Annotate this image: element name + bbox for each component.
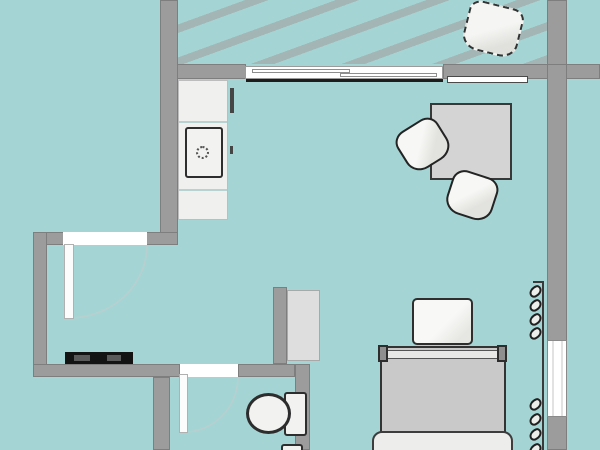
wall-bathroom-left bbox=[153, 377, 170, 450]
bathroom-door-opening[interactable] bbox=[180, 364, 238, 377]
wall-balcony-right bbox=[547, 0, 567, 65]
hook-icon bbox=[527, 326, 543, 341]
counter-divider bbox=[179, 189, 227, 191]
hook-icon bbox=[527, 412, 543, 427]
wall-entry-bottom bbox=[33, 364, 180, 377]
tv-detail bbox=[74, 355, 90, 361]
wall-balcony-top-left bbox=[177, 64, 246, 79]
right-wall-window-icon[interactable] bbox=[547, 340, 567, 417]
counter-edge-mark bbox=[230, 146, 233, 154]
entry-door-arc bbox=[69, 245, 147, 318]
balcony-window-icon[interactable] bbox=[447, 76, 528, 83]
tv-detail bbox=[107, 355, 121, 361]
bed-blanket bbox=[372, 431, 513, 450]
counter-edge-mark bbox=[230, 88, 234, 113]
floor-plan-canvas bbox=[0, 0, 600, 450]
entry-door-opening[interactable] bbox=[63, 232, 147, 245]
wall-wardrobe-stub bbox=[273, 287, 287, 364]
hook-icon bbox=[527, 427, 543, 442]
bathroom-sink[interactable] bbox=[281, 444, 303, 450]
wall-hooks-rail[interactable] bbox=[527, 281, 544, 450]
sliding-door-threshold bbox=[246, 79, 443, 82]
hook-icon bbox=[527, 298, 543, 313]
counter-divider bbox=[179, 121, 227, 123]
sliding-door-panel bbox=[252, 69, 350, 73]
hook-icon bbox=[527, 442, 543, 450]
hook-icon bbox=[527, 284, 543, 299]
bedside-table[interactable] bbox=[412, 298, 473, 345]
wall-entry-top-right bbox=[146, 232, 178, 245]
bathroom-door-arc bbox=[184, 377, 238, 432]
wall-bathroom-top bbox=[238, 364, 295, 377]
wardrobe[interactable] bbox=[287, 290, 320, 361]
bed-post bbox=[497, 345, 507, 362]
entry-door-leaf[interactable] bbox=[64, 244, 74, 319]
sliding-door-panel bbox=[340, 73, 437, 77]
tv-stand[interactable] bbox=[65, 352, 133, 364]
bed-post bbox=[378, 345, 388, 362]
bed-headboard bbox=[384, 350, 502, 359]
sink-drain-icon bbox=[196, 146, 209, 159]
hook-icon bbox=[527, 312, 543, 327]
wall-left bbox=[33, 232, 47, 377]
bathroom-door-leaf[interactable] bbox=[179, 374, 188, 433]
toilet[interactable] bbox=[246, 393, 291, 434]
wall-kitchen-left bbox=[160, 0, 178, 245]
hook-icon bbox=[527, 397, 543, 412]
